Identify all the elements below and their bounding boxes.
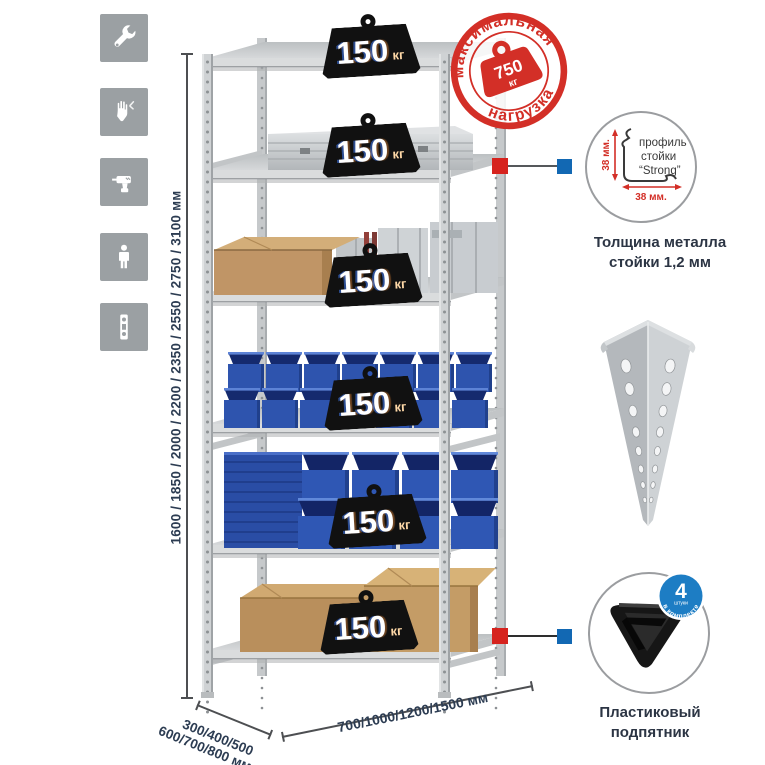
plastic-foot-caption: Пластиковый подпятник — [585, 703, 715, 742]
foot-marker-red-square — [492, 628, 508, 644]
weight-body: 150 кг — [321, 375, 424, 431]
load-unit: кг — [390, 622, 403, 638]
shelf1-load-badge: 150 кг — [318, 11, 422, 81]
corner-post-image — [596, 312, 700, 528]
profile-label-line1: профиль — [639, 137, 687, 149]
load-unit: кг — [394, 398, 407, 414]
load-unit: кг — [392, 46, 405, 62]
load-value: 150 — [338, 263, 392, 297]
shelf3-load-badge: 150 кг — [320, 240, 424, 310]
load-value: 150 — [336, 34, 390, 68]
load-unit: кг — [394, 275, 407, 291]
plastic-foot-line1: Пластиковый — [585, 703, 715, 723]
metal-thickness-line2: стойки 1,2 мм — [580, 253, 740, 273]
drill-icon-glyph — [109, 167, 139, 197]
metal-thickness-caption: Толщина металла стойки 1,2 мм — [580, 233, 740, 272]
load-unit: кг — [392, 145, 405, 161]
wrench-icon — [100, 14, 148, 62]
metal-thickness-line1: Толщина металла — [580, 233, 740, 253]
post-profile-drawing: 38 мм. 38 мм. профиль стойки “Strong” — [587, 113, 695, 221]
profile-marker-line — [508, 165, 558, 167]
shelf4-load-badge: 150 кг — [320, 363, 424, 433]
load-unit: кг — [398, 516, 411, 532]
gloves-icon-glyph — [109, 97, 139, 127]
profile-marker-blue-square — [557, 159, 572, 174]
foot-marker-line — [508, 635, 558, 637]
load-value: 150 — [338, 386, 392, 420]
weight-body: 150 кг — [319, 122, 422, 178]
post-profile-detail-circle: 38 мм. 38 мм. профиль стойки “Strong” — [585, 111, 697, 223]
profile-dim-vertical-label: 38 мм. — [601, 139, 612, 171]
foot-marker-blue-square — [557, 629, 572, 644]
rack-post-icon — [100, 303, 148, 351]
wrench-icon-glyph — [109, 23, 139, 53]
foot-count-badge: 4 штуки в комплекте — [656, 571, 706, 621]
shelf5-load-badge: 150 кг — [324, 481, 428, 551]
weight-body: 150 кг — [325, 493, 428, 549]
profile-label-line2: стойки — [641, 151, 676, 163]
weight-body: 150 кг — [321, 252, 424, 308]
shelf2-load-badge: 150 кг — [318, 110, 422, 180]
person-icon-glyph — [109, 242, 139, 272]
weight-body: 150 кг — [317, 599, 420, 655]
profile-marker-red-square — [492, 158, 508, 174]
foot-count-badge-graphic: 4 штуки в комплекте — [656, 571, 706, 621]
product-infographic: 1600 / 1850 / 2000 / 2200 / 2350 / 2550 … — [0, 0, 765, 765]
load-value: 150 — [334, 610, 388, 644]
depth-dimension-label: 300/400/500 600/700/800 мм — [156, 709, 259, 765]
rack-post-icon-glyph — [109, 312, 139, 342]
profile-label: профиль стойки “Strong” — [639, 137, 687, 177]
load-value: 150 — [342, 504, 396, 538]
load-value: 150 — [336, 133, 390, 167]
profile-label-line3: “Strong” — [639, 165, 681, 177]
badge-word: штуки — [674, 601, 688, 607]
profile-dim-horizontal-label: 38 мм. — [635, 192, 667, 203]
plastic-foot-line2: подпятник — [585, 723, 715, 743]
shelf6-load-badge: 150 кг — [316, 587, 420, 657]
weight-body: 150 кг — [319, 23, 422, 79]
gloves-icon — [100, 88, 148, 136]
person-icon — [100, 233, 148, 281]
drill-icon — [100, 158, 148, 206]
